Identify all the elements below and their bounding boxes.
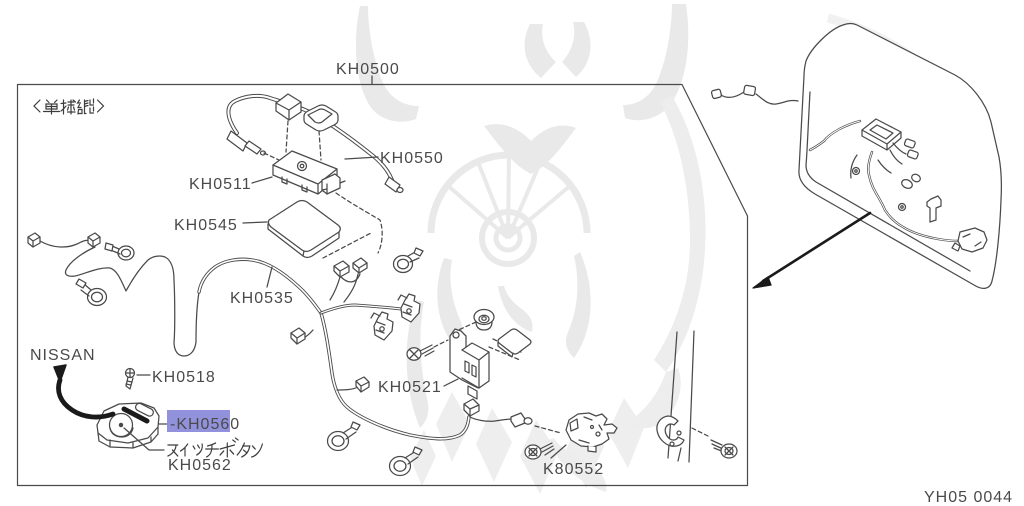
svg-text:-KH0560: -KH0560 bbox=[170, 416, 240, 433]
svg-text:KH0545: KH0545 bbox=[174, 217, 238, 234]
svg-text:YH05 0044: YH05 0044 bbox=[924, 489, 1013, 506]
svg-text:KH0500: KH0500 bbox=[336, 61, 400, 78]
svg-text:KH0511: KH0511 bbox=[189, 176, 252, 193]
svg-text:K80552: K80552 bbox=[543, 461, 604, 478]
svg-text:KH0550: KH0550 bbox=[380, 150, 444, 167]
svg-text:NISSAN: NISSAN bbox=[30, 347, 96, 364]
svg-text:KH0535: KH0535 bbox=[230, 290, 294, 307]
svg-text:KH0521: KH0521 bbox=[378, 379, 442, 396]
svg-text:KH0518: KH0518 bbox=[152, 369, 216, 386]
svg-text:KH0562: KH0562 bbox=[168, 457, 232, 474]
